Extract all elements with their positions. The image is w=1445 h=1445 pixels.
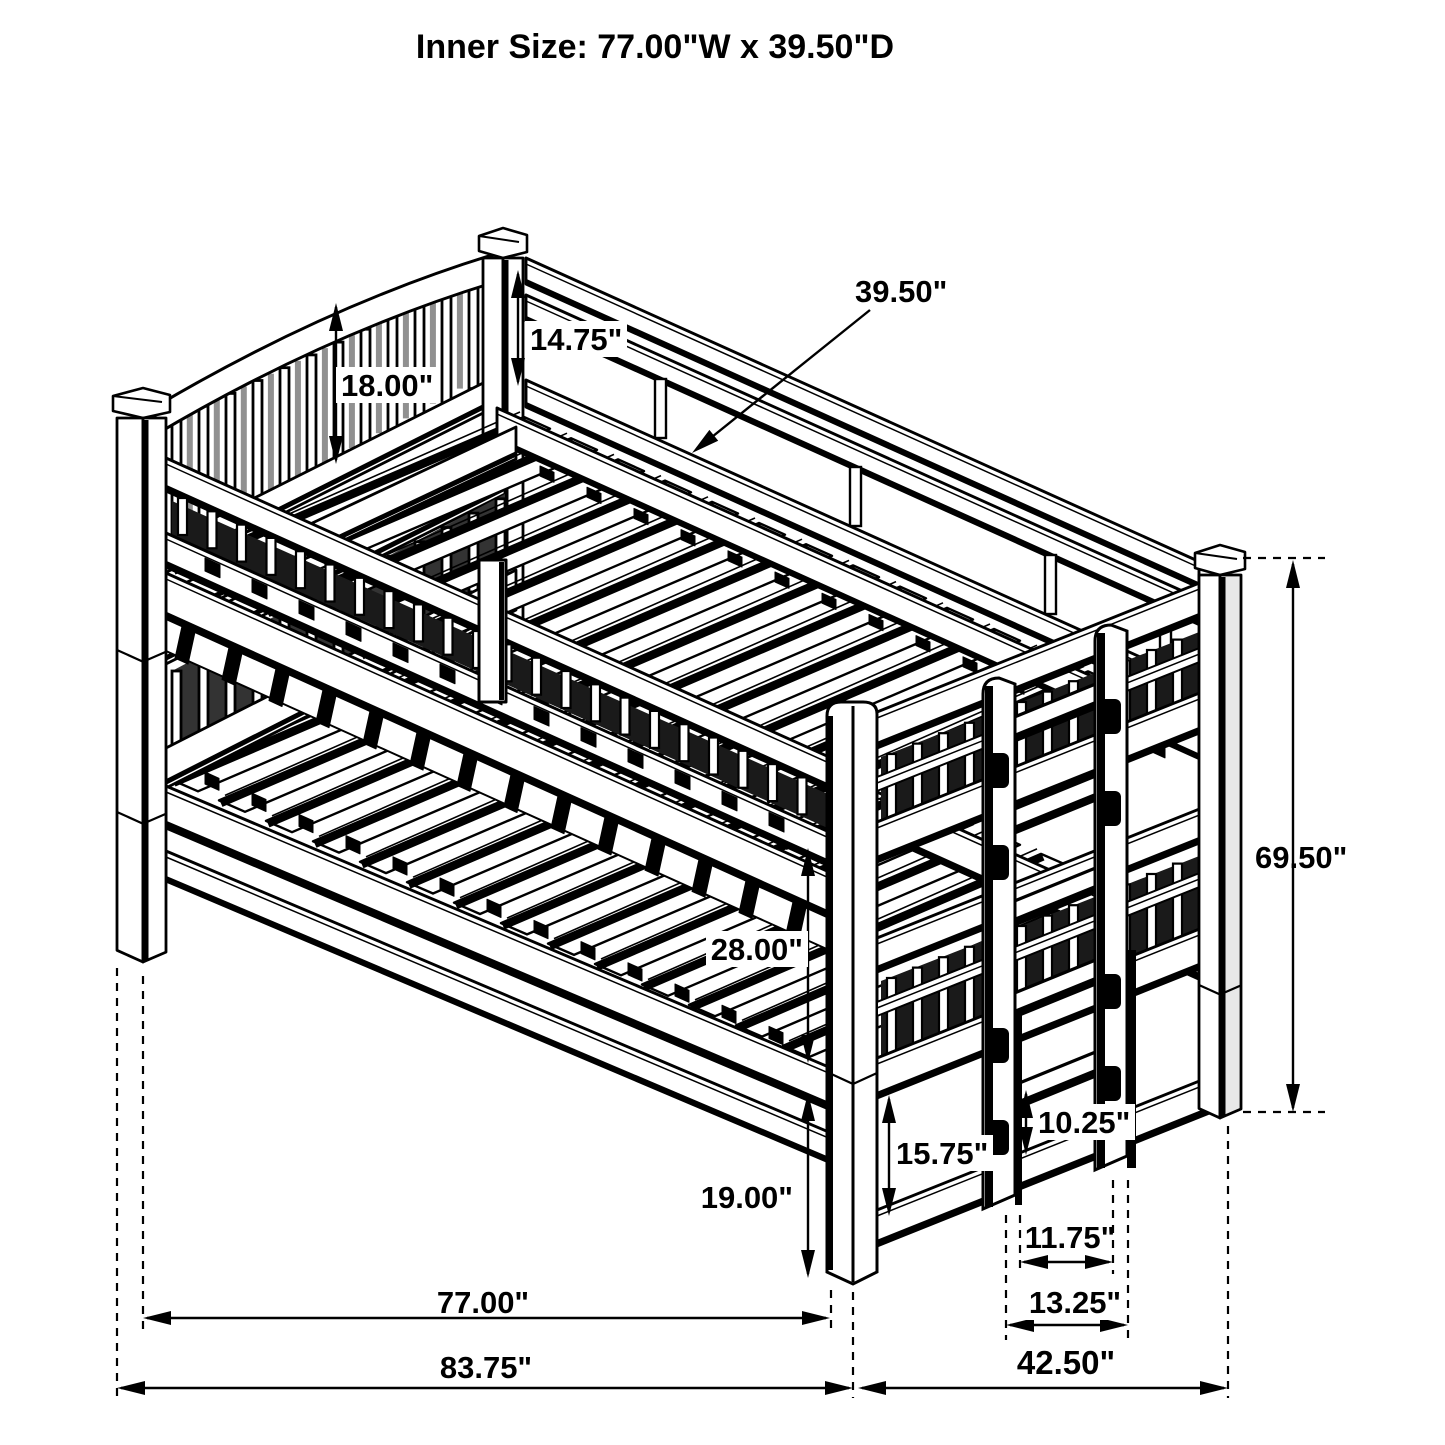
svg-text:13.25": 13.25" [1029, 1285, 1121, 1320]
svg-text:42.50": 42.50" [1017, 1344, 1115, 1381]
svg-text:28.00": 28.00" [711, 932, 803, 967]
svg-text:83.75": 83.75" [440, 1350, 532, 1385]
svg-text:14.75": 14.75" [530, 322, 622, 357]
svg-text:10.25": 10.25" [1038, 1105, 1130, 1140]
svg-text:18.00": 18.00" [341, 368, 433, 403]
svg-text:69.50": 69.50" [1255, 840, 1347, 875]
svg-text:Inner Size: 77.00"W x 39.50"D: Inner Size: 77.00"W x 39.50"D [416, 28, 894, 66]
svg-text:15.75": 15.75" [896, 1136, 988, 1171]
svg-text:39.50": 39.50" [855, 274, 947, 309]
svg-text:77.00": 77.00" [437, 1285, 529, 1320]
svg-text:11.75": 11.75" [1025, 1220, 1116, 1255]
svg-text:19.00": 19.00" [701, 1180, 793, 1215]
